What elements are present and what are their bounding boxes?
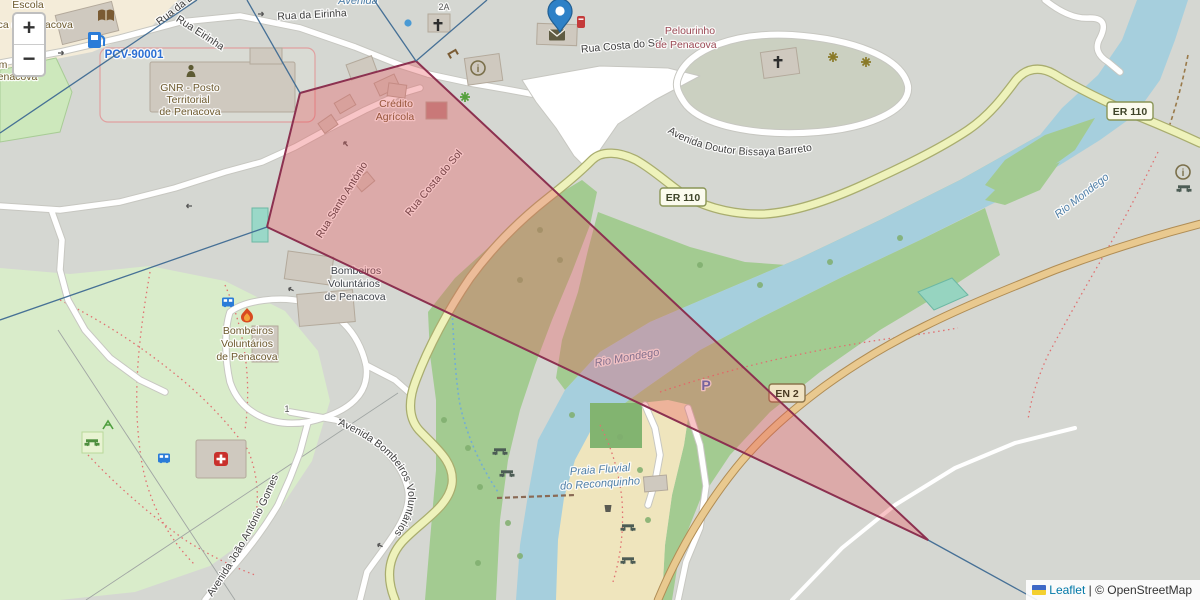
zoom-in-button[interactable]: + [14,14,44,45]
bus-stop-icon [222,298,234,308]
fountain-icon [404,19,411,26]
fuel-station-label: PCV-90001 [105,49,164,61]
fire-station-label: Bombeiros [223,325,273,337]
bus-stop-icon [158,454,170,464]
en2-shield: EN 2 [775,388,799,400]
waste-basket-icon [605,505,612,512]
openstreetmap-link[interactable]: © OpenStreetMap [1095,583,1192,597]
library-icon [98,10,114,22]
pelourinho-label: Pelourinho [665,25,715,37]
post-box-icon [577,16,585,28]
map-tiles: i [0,0,1200,600]
fire-station-label: Voluntários [221,338,273,350]
viewpoint-icon [861,57,871,67]
housenumber-label: 2A [438,2,449,12]
gnr-label: GNR - Posto [160,82,220,94]
pelourinho-label: de Penacova [655,39,716,51]
er110-shield: ER 110 [1113,106,1148,118]
housenumber-label: 1 [284,404,289,414]
svg-text:Avenida: Avenida [337,0,378,7]
leaflet-map[interactable]: i [0,0,1200,600]
pitch [252,208,268,242]
svg-text:m: m [0,59,8,71]
flower-icon [460,92,470,102]
er110-shield: ER 110 [666,192,701,204]
hospital-icon [214,452,228,466]
fire-station-label: de Penacova [216,351,277,363]
bombeiros-label: de Penacova [324,291,385,303]
zoom-control: + − [12,12,46,77]
ukraine-flag-icon [1032,585,1046,595]
leaflet-link[interactable]: Leaflet [1049,583,1085,597]
bombeiros-label: Voluntários [328,278,380,290]
zoom-out-button[interactable]: − [14,45,44,75]
school-label: Escola [12,0,44,11]
attribution-bar: Leaflet | © OpenStreetMap [1026,580,1200,600]
map-marker-icon[interactable] [546,0,574,39]
gnr-label: Territorial [166,94,209,106]
attribution-separator: | [1089,583,1092,597]
gnr-label: de Penacova [159,106,220,118]
viewpoint-icon [828,52,838,62]
